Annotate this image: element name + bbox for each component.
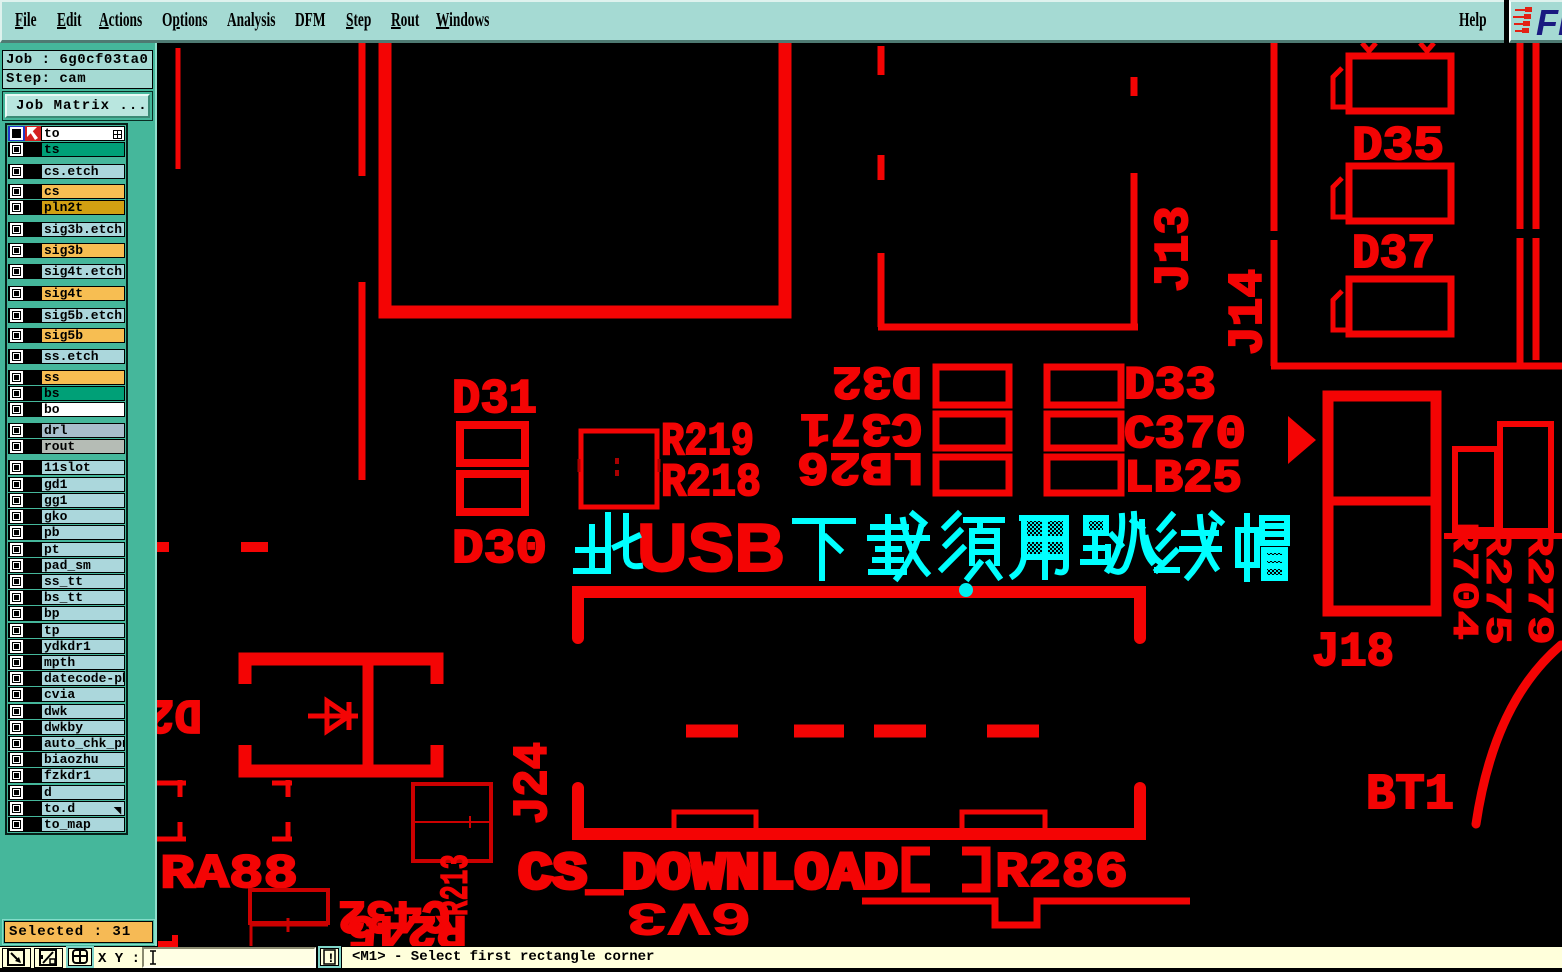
svg-text:J14: J14 [1222,269,1276,355]
svg-text:LB25: LB25 [1124,453,1242,505]
svg-text:D30: D30 [452,523,547,577]
svg-text:D37: D37 [1352,228,1435,282]
svg-text:D31: D31 [452,373,537,427]
svg-text:!: ! [327,951,335,965]
svg-text:R279: R279 [1518,527,1559,645]
svg-text:R286: R286 [995,845,1128,902]
svg-text:J18: J18 [1312,626,1394,680]
svg-text:D33: D33 [1124,360,1216,412]
svg-text:D32: D32 [832,354,922,406]
svg-text:J13: J13 [1148,206,1202,292]
svg-text:R218: R218 [661,457,761,509]
svg-text:R213: R213 [435,854,480,916]
svg-text:Fr: Fr [1536,2,1562,42]
svg-text:R275: R275 [1476,527,1517,645]
svg-text:6V3: 6V3 [626,890,752,942]
svg-text:BT1: BT1 [1366,767,1454,824]
svg-text:USB: USB [637,510,785,586]
svg-text:J24: J24 [507,742,561,824]
svg-text:LB26: LB26 [797,440,925,492]
svg-text:RA88: RA88 [160,848,298,902]
